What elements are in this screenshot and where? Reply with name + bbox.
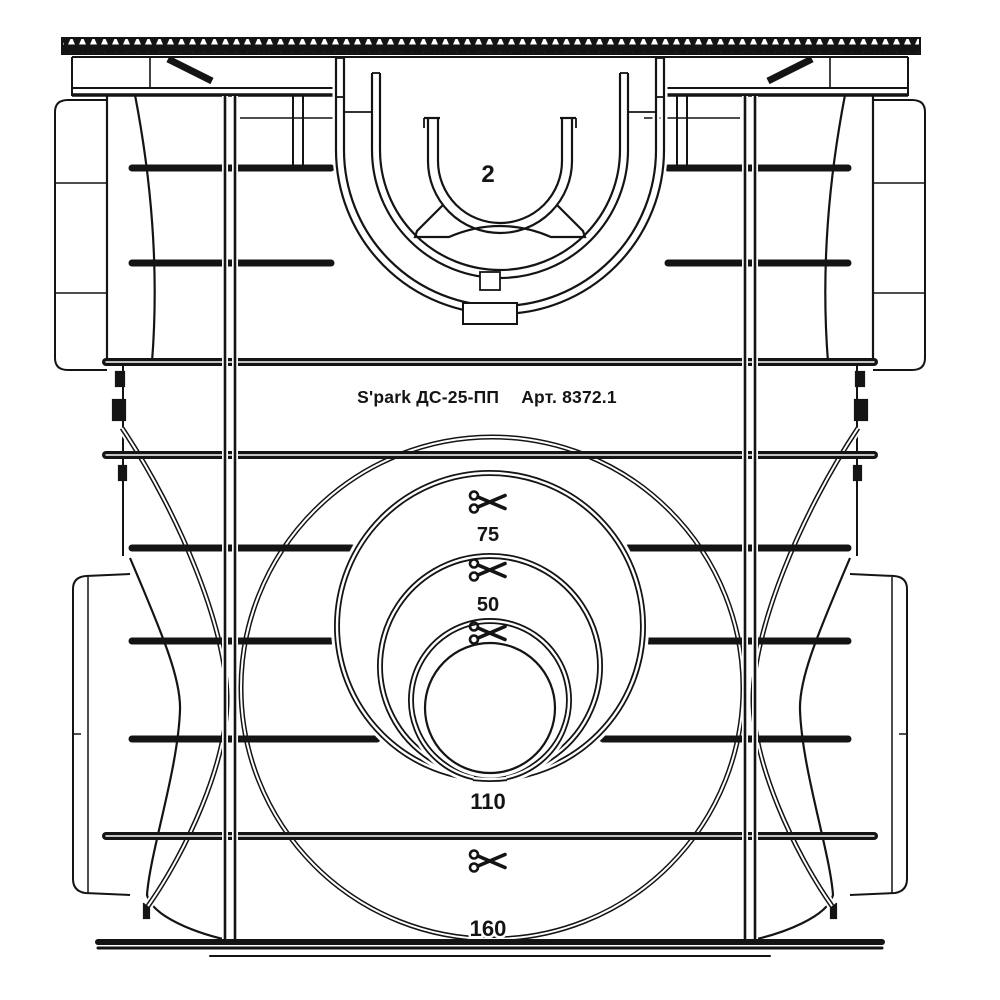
scissors-icon: [470, 851, 505, 872]
frame-lock-wedge-right: [768, 59, 812, 81]
knockout-110-label: 110: [470, 789, 506, 814]
technical-drawing-page: 2 S'park ДС-25-ППАрт. 8372.1 75 50 110 1…: [0, 0, 1000, 1000]
upper-left-tab: [55, 100, 107, 370]
edge-clip: [119, 466, 126, 480]
edge-clip: [856, 372, 864, 386]
cut-marks: [470, 492, 505, 872]
brand-text: S'park ДС-25-ПП: [357, 387, 499, 407]
product-label: S'park ДС-25-ППАрт. 8372.1: [357, 387, 617, 407]
channel-profile: [415, 118, 585, 237]
seat-bottom-tab: [463, 303, 517, 324]
scissors-icon: [470, 492, 505, 513]
edge-clip: [854, 466, 861, 480]
knockout-160-label: 160: [470, 916, 507, 941]
top-grate: [62, 38, 920, 96]
u-channel-seat: [336, 58, 664, 324]
frame-lock-wedge-left: [168, 59, 212, 81]
pilot-circle: [425, 643, 555, 773]
article-text: Арт. 8372.1: [521, 387, 617, 407]
knockout-50-label: 50: [477, 594, 499, 616]
edge-clip: [116, 372, 124, 386]
seat-inner-tab: [480, 272, 500, 290]
channel-callout-label: 2: [481, 161, 494, 188]
drain-basin-drawing: 2 S'park ДС-25-ППАрт. 8372.1 75 50 110 1…: [0, 0, 1000, 1000]
edge-clip: [113, 400, 125, 420]
base-plate: [98, 942, 882, 956]
knockout-75-label: 75: [477, 524, 499, 546]
knurled-strip: [62, 38, 920, 54]
knockout-circles: [337, 473, 643, 779]
lower-left-tab: [73, 574, 130, 895]
upper-right-tab: [873, 100, 925, 370]
lower-right-tab: [850, 574, 907, 895]
edge-clip: [855, 400, 867, 420]
